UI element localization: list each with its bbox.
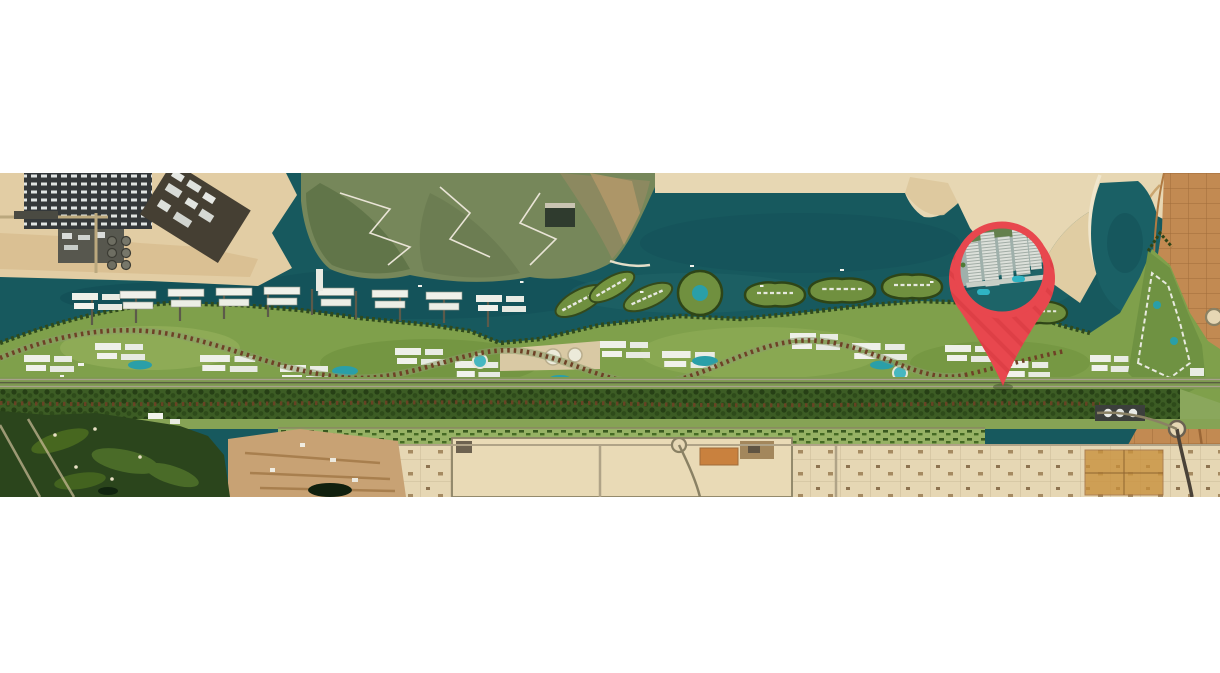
mangrove-island: [301, 173, 655, 282]
transit-corridor: [0, 377, 1220, 389]
tree-boulevard: [0, 389, 1220, 429]
container-yard: [24, 173, 152, 229]
map-canvas: [0, 173, 1220, 497]
satellite-map[interactable]: [0, 173, 1220, 497]
page: [0, 0, 1220, 673]
construction-zone: [228, 429, 406, 497]
industrial-port: [0, 173, 297, 286]
